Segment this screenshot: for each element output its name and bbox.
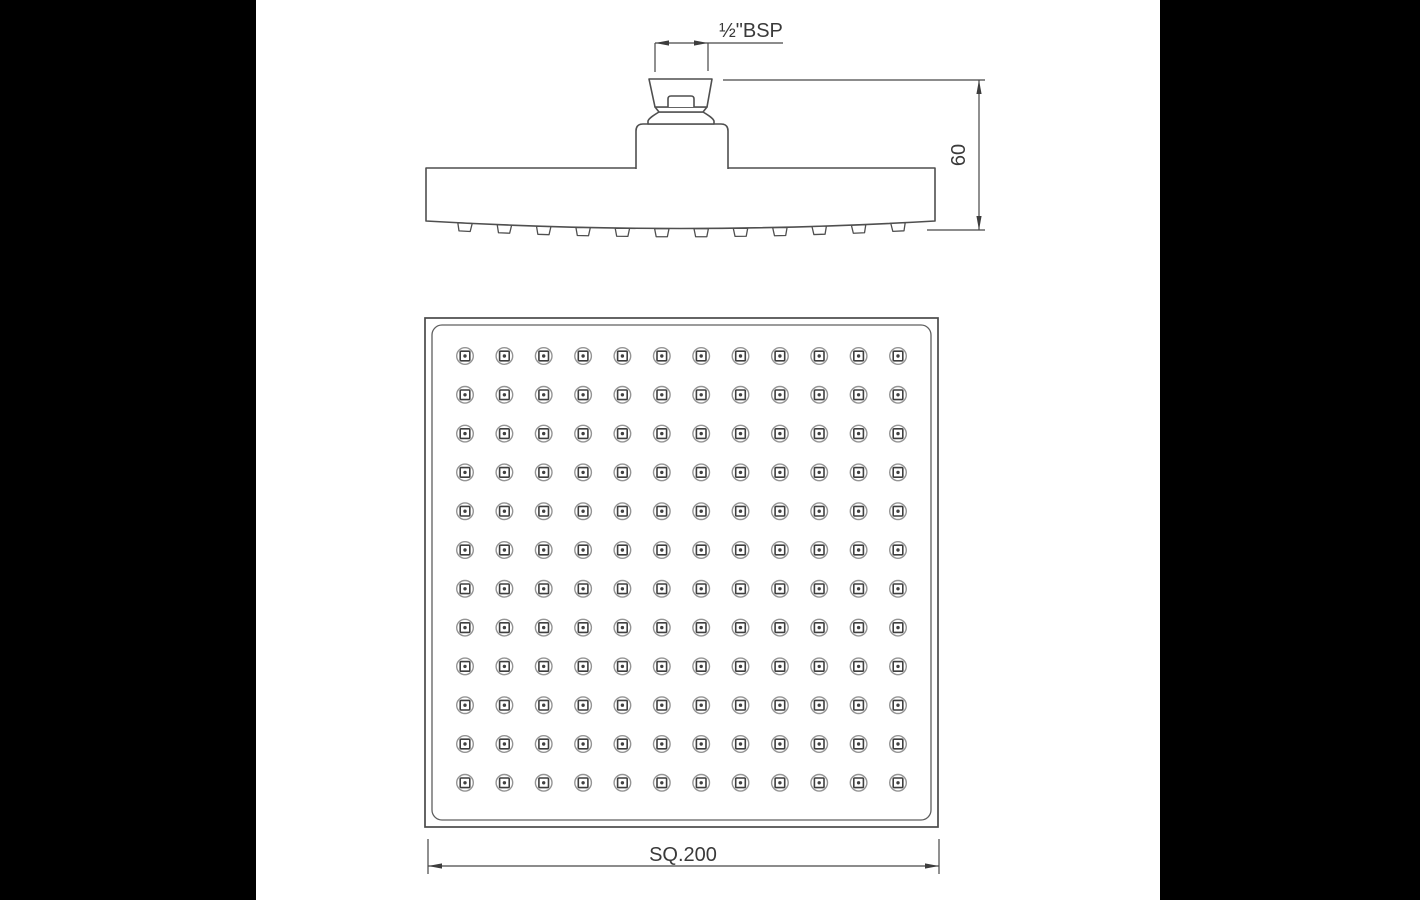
face-nozzle: [772, 348, 789, 365]
face-nozzle: [457, 503, 474, 520]
drawing-sheet: ½"BSP 60 SQ.200: [256, 0, 1160, 900]
face-nozzle: [772, 464, 789, 481]
side-nozzle: [497, 225, 512, 234]
technical-drawing: ½"BSP 60 SQ.200: [256, 0, 1160, 900]
face-nozzle: [535, 348, 552, 365]
face-nozzle: [811, 775, 828, 792]
face-nozzle: [535, 658, 552, 675]
face-nozzle: [457, 464, 474, 481]
face-nozzle: [732, 658, 749, 675]
side-nozzle: [615, 228, 630, 236]
face-nozzle: [693, 542, 710, 559]
face-nozzle: [693, 503, 710, 520]
face-nozzle: [850, 697, 867, 714]
face-nozzle: [614, 775, 631, 792]
face-nozzle: [850, 658, 867, 675]
face-nozzle: [811, 581, 828, 598]
face-nozzle: [457, 542, 474, 559]
face-nozzle: [811, 619, 828, 636]
face-nozzle: [614, 387, 631, 404]
face-nozzle: [732, 425, 749, 442]
arrowhead-right: [694, 40, 708, 45]
face-nozzle: [772, 503, 789, 520]
face-nozzle: [811, 697, 828, 714]
face-nozzle: [535, 775, 552, 792]
face-nozzle: [496, 697, 513, 714]
face-nozzle: [772, 736, 789, 753]
face-nozzle: [654, 503, 671, 520]
face-nozzle: [732, 348, 749, 365]
face-nozzle: [693, 348, 710, 365]
side-view-neck: [636, 124, 728, 169]
face-nozzle: [575, 425, 592, 442]
face-nozzle: [850, 775, 867, 792]
face-nozzle: [772, 775, 789, 792]
face-nozzle: [654, 581, 671, 598]
face-nozzle: [457, 348, 474, 365]
face-nozzle: [850, 464, 867, 481]
face-nozzle: [654, 387, 671, 404]
face-nozzle: [890, 464, 907, 481]
face-nozzle: [850, 503, 867, 520]
side-nozzle: [851, 225, 866, 234]
side-nozzle: [457, 223, 472, 232]
face-nozzle: [890, 387, 907, 404]
face-nozzle: [575, 387, 592, 404]
face-nozzle: [535, 581, 552, 598]
face-nozzle: [654, 736, 671, 753]
side-view-collar-bulge: [648, 112, 714, 124]
face-nozzle: [535, 619, 552, 636]
width-dimension-label: SQ.200: [649, 844, 717, 866]
face-nozzle: [732, 581, 749, 598]
face-nozzle: [457, 736, 474, 753]
face-nozzle: [457, 619, 474, 636]
face-nozzle: [457, 775, 474, 792]
face-nozzle: [575, 736, 592, 753]
face-nozzle: [535, 697, 552, 714]
face-nozzle: [732, 503, 749, 520]
face-nozzle: [535, 736, 552, 753]
face-nozzle: [457, 581, 474, 598]
face-nozzle: [850, 387, 867, 404]
arrowhead-left: [655, 40, 669, 45]
face-nozzle: [811, 348, 828, 365]
face-nozzle: [772, 658, 789, 675]
face-nozzle: [732, 464, 749, 481]
face-nozzle: [693, 581, 710, 598]
arrowhead-left: [428, 863, 442, 868]
side-view: [426, 79, 935, 237]
face-nozzle: [496, 425, 513, 442]
side-view-head-body: [426, 168, 935, 229]
face-nozzle: [614, 619, 631, 636]
face-nozzle: [457, 387, 474, 404]
face-nozzle: [890, 619, 907, 636]
face-nozzle: [457, 697, 474, 714]
face-nozzle: [693, 425, 710, 442]
face-nozzle: [496, 542, 513, 559]
face-nozzle: [496, 387, 513, 404]
face-nozzle: [772, 619, 789, 636]
thread-size-label: ½"BSP: [719, 20, 783, 42]
face-nozzle: [693, 736, 710, 753]
dimension-thread: ½"BSP: [655, 20, 783, 72]
face-nozzle: [850, 425, 867, 442]
face-nozzle: [614, 425, 631, 442]
face-nozzle: [654, 775, 671, 792]
face-nozzle: [654, 658, 671, 675]
face-nozzle: [850, 736, 867, 753]
face-nozzle: [732, 775, 749, 792]
face-nozzle: [575, 464, 592, 481]
face-nozzle: [614, 503, 631, 520]
face-nozzle: [654, 697, 671, 714]
dimension-width: SQ.200: [428, 839, 939, 874]
face-nozzle: [457, 425, 474, 442]
face-view: [425, 318, 938, 827]
face-nozzle: [535, 464, 552, 481]
side-view-fitting-boss: [668, 96, 694, 107]
face-nozzle: [496, 581, 513, 598]
face-nozzle: [890, 503, 907, 520]
face-nozzle: [890, 581, 907, 598]
face-nozzle: [535, 503, 552, 520]
face-nozzle: [732, 387, 749, 404]
face-nozzle: [890, 425, 907, 442]
face-nozzle: [850, 619, 867, 636]
face-nozzle: [575, 658, 592, 675]
face-nozzle: [772, 697, 789, 714]
side-nozzle: [812, 226, 827, 234]
height-dimension-label: 60: [948, 144, 970, 166]
face-nozzle: [890, 736, 907, 753]
face-nozzle: [890, 775, 907, 792]
face-nozzle: [811, 425, 828, 442]
face-nozzle: [890, 542, 907, 559]
face-nozzle: [575, 619, 592, 636]
face-nozzle: [575, 581, 592, 598]
face-nozzle: [535, 387, 552, 404]
face-nozzle: [811, 542, 828, 559]
face-nozzle: [614, 542, 631, 559]
face-nozzle: [654, 464, 671, 481]
side-nozzle: [694, 229, 708, 237]
face-nozzle: [614, 581, 631, 598]
face-nozzle: [890, 348, 907, 365]
face-nozzle: [811, 658, 828, 675]
side-nozzle: [576, 227, 591, 235]
face-nozzle: [693, 775, 710, 792]
face-nozzle: [575, 348, 592, 365]
face-nozzle: [732, 697, 749, 714]
face-nozzle: [850, 581, 867, 598]
face-nozzle: [654, 542, 671, 559]
side-nozzle: [733, 228, 748, 236]
face-nozzle: [850, 348, 867, 365]
face-nozzle: [890, 697, 907, 714]
face-nozzle: [614, 464, 631, 481]
face-nozzle: [890, 658, 907, 675]
face-nozzle: [575, 503, 592, 520]
face-nozzle: [496, 348, 513, 365]
face-nozzle: [614, 736, 631, 753]
face-nozzle: [496, 619, 513, 636]
arrowhead-right: [925, 863, 939, 868]
face-nozzle: [535, 542, 552, 559]
face-nozzle: [575, 775, 592, 792]
face-nozzle: [693, 619, 710, 636]
face-nozzle: [772, 581, 789, 598]
arrowhead-down: [976, 216, 981, 230]
face-nozzle: [693, 697, 710, 714]
face-nozzle: [575, 697, 592, 714]
face-nozzle: [496, 775, 513, 792]
face-nozzle: [535, 425, 552, 442]
side-nozzle: [773, 227, 788, 235]
face-nozzle: [496, 464, 513, 481]
face-nozzle: [496, 658, 513, 675]
face-nozzle: [614, 658, 631, 675]
side-nozzle: [655, 229, 669, 237]
face-nozzle: [732, 542, 749, 559]
arrowhead-up: [976, 80, 981, 94]
face-nozzle: [693, 658, 710, 675]
face-nozzle: [614, 697, 631, 714]
face-nozzle: [811, 464, 828, 481]
face-nozzle: [693, 387, 710, 404]
side-nozzle: [891, 223, 906, 232]
side-nozzle: [536, 226, 551, 234]
face-nozzle: [811, 387, 828, 404]
face-nozzle: [772, 387, 789, 404]
face-nozzle: [496, 503, 513, 520]
face-nozzle: [654, 425, 671, 442]
face-nozzle: [811, 736, 828, 753]
face-nozzle: [850, 542, 867, 559]
face-nozzle: [772, 542, 789, 559]
face-nozzle: [732, 619, 749, 636]
face-nozzle: [496, 736, 513, 753]
face-nozzle: [811, 503, 828, 520]
face-nozzle: [654, 619, 671, 636]
face-nozzle: [457, 658, 474, 675]
face-nozzle: [654, 348, 671, 365]
face-nozzle: [732, 736, 749, 753]
face-nozzle: [693, 464, 710, 481]
face-nozzle: [575, 542, 592, 559]
face-nozzle: [772, 425, 789, 442]
face-nozzle: [614, 348, 631, 365]
